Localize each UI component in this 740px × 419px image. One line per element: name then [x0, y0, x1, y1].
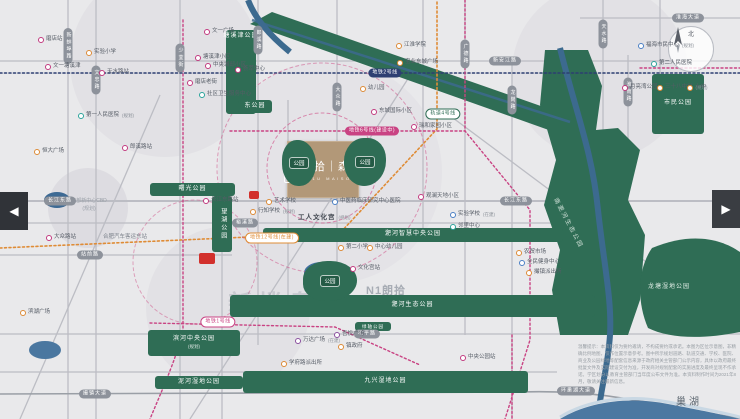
road-pill: 裕溪路 [232, 219, 258, 228]
poi-label: 江淮学院 [404, 43, 426, 49]
poi-label: 社区卫生服务中心 [207, 92, 251, 98]
poi: 第二小学 [338, 245, 368, 251]
poi: 荟萃中心 [235, 67, 265, 73]
poi: 行知学校(规划) [250, 209, 295, 215]
road-pill: 新蚌埠路 [64, 28, 73, 64]
poi-sublabel: (规划) [339, 215, 351, 221]
park: 望湖公园 [212, 196, 232, 252]
poi: 郎溪路站 [122, 145, 152, 151]
poi-label: 吾悦广场 [342, 332, 364, 338]
poi-label: 农贸市场 [524, 250, 546, 256]
poi-dot [367, 245, 373, 251]
poi-dot [338, 245, 344, 251]
poi-dot [397, 60, 403, 66]
poi-label: 大众路站 [54, 235, 76, 241]
poi-dot [78, 113, 84, 119]
disclaimer-text: 温馨提示：本资料仅为要约邀请，不构成要约或承诺。本图为区位示意图，非精确比例地图… [578, 344, 736, 386]
poi-dot [516, 250, 522, 256]
poi: 幼儿园 [360, 86, 385, 92]
poi: 福海市民中心(规划) [638, 43, 694, 49]
poi: 塘溪津小区 [195, 55, 231, 61]
poi: 学府路派出所 [281, 361, 322, 367]
poi-dot [86, 50, 92, 56]
poi: 天水路站 [99, 70, 129, 76]
poi-dot [360, 86, 366, 92]
poi-dot [20, 310, 26, 316]
poi-label: 观澜天地小区 [426, 194, 459, 200]
poi-dot [411, 124, 417, 130]
poi-label: 邻里中心 [458, 224, 480, 230]
poi: 宝业东城广场 [397, 60, 438, 66]
poi-label: 恒大广场 [42, 149, 64, 155]
poi: 文化宫站 [350, 266, 380, 272]
poi-label: 艺术学校 [274, 199, 296, 205]
road-pill: 天水路 [599, 20, 608, 49]
poi-label: 合肥汽车客运东站 [103, 235, 147, 241]
poi-dot [338, 344, 344, 350]
poi: 中医药临床研究中心医院 [332, 199, 401, 205]
road-pill: 环巢湖大道 [557, 387, 595, 396]
poi-dot [350, 266, 356, 272]
poi-label: 瑞和家园小区 [419, 124, 452, 130]
poi-label: 文一塘溪津 [53, 64, 81, 70]
poi: 磨店站 [38, 37, 63, 43]
park: 滨河中央公园(规划) [148, 330, 240, 356]
poi: 全民健身中心 [519, 260, 560, 266]
poi-dot [204, 29, 210, 35]
poi-label: 天水路站 [107, 70, 129, 76]
poi-dot [235, 67, 241, 73]
park-label: 淝河智慧中央公园 [385, 231, 441, 239]
poi-dot [205, 63, 211, 69]
poi-label: 塘溪津小区 [203, 55, 231, 61]
poi: 中心幼儿园 [367, 245, 403, 251]
poi-label: 郎溪路站 [130, 145, 152, 151]
road-pill: 大众路 [333, 83, 342, 112]
poi-label: 十中 [695, 85, 706, 91]
poi: 合肥汽车客运东站 [103, 235, 147, 241]
road-pill: 淮南路 [624, 78, 633, 107]
poi: 吾悦广场 [334, 332, 364, 338]
road-pill: 撮镇大道 [79, 390, 111, 399]
poi: 滨湖广场 [20, 310, 50, 316]
poi: 社区卫生服务中心 [199, 92, 251, 98]
poi-label: 荟萃中心 [243, 67, 265, 73]
poi-dot [199, 92, 205, 98]
poi: 文一塘溪津 [45, 64, 81, 70]
compass-north-label: 北 [688, 29, 694, 38]
poi: 瑞和家园小区 [411, 124, 452, 130]
poi-label: 行知学校 [258, 209, 280, 215]
poi: 江淮学院 [396, 43, 426, 49]
park: 淝河智慧中央公园 [263, 228, 563, 242]
park: 东公园 [238, 100, 272, 113]
poi-dot [281, 361, 287, 367]
poi-sublabel: (规划) [122, 113, 134, 119]
poi: 艺术学校 [266, 199, 296, 205]
poi-dot [371, 109, 377, 115]
park-label: 泥河湿地公园 [178, 379, 220, 387]
park: 淝河生态公园 [230, 295, 595, 317]
carousel-next-button[interactable]: ▶ [712, 190, 740, 228]
poi-dot [622, 85, 628, 91]
poi-dot [526, 270, 532, 276]
poi-dot [687, 85, 693, 91]
park-label: 九兴湿地公园 [364, 378, 406, 386]
station-marker [249, 191, 259, 199]
poi-label: 实验小学 [94, 50, 116, 56]
park-label: 绿轴公园 [362, 324, 384, 330]
road-pill: 郎溪路 [254, 26, 263, 55]
poi-label: 东城国际小区 [379, 109, 412, 115]
metro-line-pill: 地铁12号线(在建) [245, 233, 299, 244]
lake-label: 巢湖 [676, 393, 702, 408]
poi: 实验小学 [86, 50, 116, 56]
poi-dot [38, 37, 44, 43]
park-label: 东公园 [244, 103, 265, 111]
poi-sublabel: (在建) [483, 212, 495, 218]
poi: 镇政府 [338, 344, 363, 350]
poi-dot [638, 43, 644, 49]
road-pill: 新安江路 [489, 57, 521, 66]
poi: 实验学校(在建) [450, 212, 495, 218]
poi-dot [295, 338, 301, 344]
poi-dot [45, 64, 51, 70]
poi-dot [250, 209, 256, 215]
poi: 磨店老街 [187, 80, 217, 86]
road-pill: 长江东路 [500, 197, 532, 206]
park: 曙光公园 [150, 183, 235, 196]
poi: 万达广场(在建) [295, 338, 340, 344]
poi-dot [122, 145, 128, 151]
poi-label: 中心幼儿园 [375, 245, 403, 251]
park: 九兴湿地公园 [243, 371, 528, 393]
poi-label: 滨湖广场 [28, 310, 50, 316]
poi-dot [418, 194, 424, 200]
park-label: 公园 [320, 275, 339, 287]
poi-label: 工人文化宫 [298, 215, 336, 222]
poi-label: 磨店老街 [195, 80, 217, 86]
poi-label: 文化宫站 [358, 266, 380, 272]
poi: 恒大广场 [34, 149, 64, 155]
poi-label: 中央公园站 [468, 355, 496, 361]
prev-arrow-icon: ◀ [9, 204, 18, 218]
poi-dot [519, 260, 525, 266]
poi: 农贸市场 [516, 250, 546, 256]
next-arrow-icon: ▶ [721, 202, 730, 216]
road-pill: 淮海大道 [672, 14, 704, 23]
park: 市民公园 [652, 74, 704, 134]
metro-line-pill: 地铁6号线(建设中) [345, 127, 399, 136]
poi-dot [334, 332, 340, 338]
poi-label: 月亮湾公园 [630, 85, 658, 91]
poi-label: 撮镇派出所 [534, 270, 562, 276]
poi-label: 学府路派出所 [289, 361, 322, 367]
poi-label: 长江东路站 [211, 198, 239, 204]
park-label: 滨河中央公园 [173, 336, 215, 344]
poi: 撮镇派出所 [526, 270, 562, 276]
park-label: 公园 [355, 156, 374, 168]
poi-dot [460, 355, 466, 361]
poi-label: 实验学校 [458, 212, 480, 218]
poi: 第一人民医院(规划) [78, 113, 134, 119]
park: 公园 [282, 140, 316, 186]
poi: 第二人民医院 [651, 61, 692, 67]
poi-label: 幼儿园 [368, 86, 385, 92]
longtang-park-label: 龙塘湿地公园 [648, 281, 690, 290]
poi-label: 第二小学 [346, 245, 368, 251]
poi-label: 中医药临床研究中心医院 [340, 199, 401, 205]
poi-dot [99, 70, 105, 76]
poi: 观澜天地小区 [418, 194, 459, 200]
park-label: 市民公园 [664, 100, 692, 108]
poi-dot [195, 55, 201, 61]
poi-label: 镇政府 [346, 344, 363, 350]
poi-label: 第二人民医院 [659, 61, 692, 67]
poi-dot [651, 61, 657, 67]
poi: 月亮湾公园 [622, 85, 658, 91]
poi-dot [332, 199, 338, 205]
poi-dot [34, 149, 40, 155]
park-label: 曙光公园 [178, 186, 206, 194]
metro-line-pill: 地铁1号线 [200, 317, 235, 328]
poi: 大众路站 [46, 235, 76, 241]
poi-label: 全民健身中心 [527, 260, 560, 266]
park-sublabel: (规划) [188, 344, 200, 350]
park-label: 望湖公园 [218, 208, 226, 240]
poi-label: 万达广场 [303, 338, 325, 344]
station-marker [199, 253, 215, 264]
poi-label: 宝业东城广场 [405, 60, 438, 66]
poi-label: 福海市民中心 [646, 43, 679, 49]
road-pill: 站前路 [77, 251, 103, 260]
poi: 邻里中心 [450, 224, 480, 230]
poi: 东城国际小区 [371, 109, 412, 115]
road-pill: 龙岗路 [508, 86, 517, 115]
road-pill: 少荃街 [176, 44, 185, 73]
carousel-prev-button[interactable]: ◀ [0, 192, 28, 230]
poi: 十中 [687, 85, 706, 91]
poi-sublabel: (规划) [682, 43, 694, 49]
park-label: 公园 [289, 157, 308, 169]
poi-dot [46, 235, 52, 241]
poi-label: 第一人民医院 [86, 113, 119, 119]
road-pill: 广德路 [461, 40, 470, 69]
poi-dot [266, 199, 272, 205]
poi-label: 文一广场 [212, 29, 234, 35]
poi-dot [450, 212, 456, 218]
poi-sublabel: (规划) [283, 209, 295, 215]
poi-dot [187, 80, 193, 86]
poi: 中央公园站 [460, 355, 496, 361]
poi-label: 磨店站 [46, 37, 63, 43]
poi-dot [450, 224, 456, 230]
park-label: 淝河生态公园 [391, 302, 433, 310]
poi: 文一广场 [204, 29, 234, 35]
road-pill: 长江东路 [44, 197, 76, 206]
metro-line-pill: 地铁2号线 [368, 69, 401, 78]
poi-dot [203, 198, 209, 204]
park: 泥河湿地公园 [155, 376, 243, 389]
poi-dot [396, 43, 402, 49]
compass-needle-icon [669, 27, 687, 53]
location-map: 南淝河生态公园 龙塘湿地公园 东部新中心CBD (规划) N1 朗拾｜森屿 N1… [0, 0, 740, 419]
metro-line-pill: 轨道4号线 [425, 109, 460, 120]
poi: 工人文化宫(规划) [298, 215, 351, 222]
poi: 长江东路站 [203, 198, 239, 204]
